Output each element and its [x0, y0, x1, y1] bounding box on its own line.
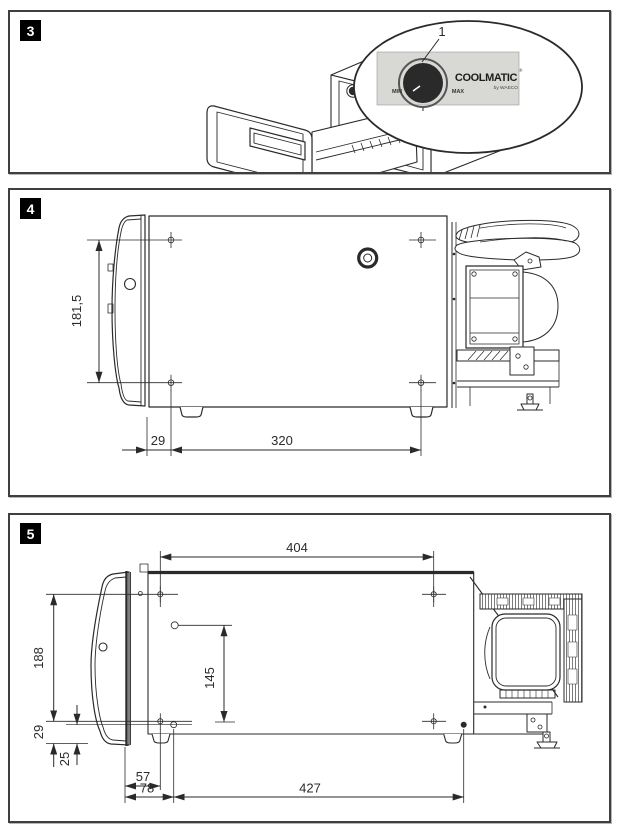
brand-sub-label: by WAECO	[494, 85, 519, 91]
knob-min-label: MIN	[392, 89, 402, 95]
dim-320: 320	[271, 433, 293, 448]
dim-188: 188	[31, 647, 46, 669]
dim-25: 25	[57, 752, 72, 766]
compressor-foot	[517, 394, 543, 410]
figure-4-drawing: 181,5 29 320	[10, 190, 609, 495]
condenser-plate	[466, 266, 523, 348]
knob-max-label: MAX	[452, 89, 465, 95]
dim-427: 427	[299, 781, 321, 796]
figure-5-drawing: 404 188 29 25 145 57 78	[10, 515, 609, 821]
compressor-assembly-side	[452, 220, 580, 410]
figure-4-badge: 4	[20, 198, 41, 219]
item-1-number: 1	[438, 24, 445, 39]
front-door-side-view	[108, 215, 145, 406]
figure-3-badge: 3	[20, 20, 41, 41]
drawer-front-panel	[207, 106, 312, 172]
dim-78: 78	[140, 781, 154, 796]
right-foot	[444, 734, 462, 743]
figure-3-panel: 3	[8, 10, 611, 174]
compressor-top	[492, 614, 560, 690]
dim-29: 29	[31, 725, 46, 739]
magnifier-callout: MIN MAX 0 COOLMATIC ® by WAECO 1	[354, 21, 582, 153]
knob-zero-label: 0	[420, 99, 423, 105]
top-bracket	[140, 564, 148, 572]
figure-5-badge: 5	[20, 523, 41, 544]
manual-page: 3	[0, 0, 619, 829]
brand-logo: COOLMATIC	[455, 72, 518, 84]
screw-hole-small	[138, 592, 142, 596]
condenser-and-compressor-top	[474, 594, 582, 748]
dim-181-5: 181,5	[69, 295, 84, 328]
left-foot	[152, 734, 170, 743]
right-foot	[410, 407, 433, 417]
figure-4-panel: 4	[8, 188, 611, 497]
corner-hole-right	[461, 722, 467, 728]
figure-5-panel: 5	[8, 513, 611, 823]
unit-body-side-view	[149, 216, 447, 417]
left-foot	[180, 407, 203, 417]
compressor-rail	[500, 690, 555, 698]
mounting-rail	[457, 347, 559, 406]
dim-404: 404	[286, 540, 308, 555]
compressor-dome	[523, 272, 558, 342]
figure-3-drawing: MIN MAX 0 COOLMATIC ® by WAECO 1	[10, 12, 609, 172]
refrigerant-hoses	[455, 220, 580, 260]
dim-145: 145	[202, 667, 217, 689]
dim-29: 29	[151, 433, 165, 448]
door-latch-upper	[108, 264, 113, 271]
